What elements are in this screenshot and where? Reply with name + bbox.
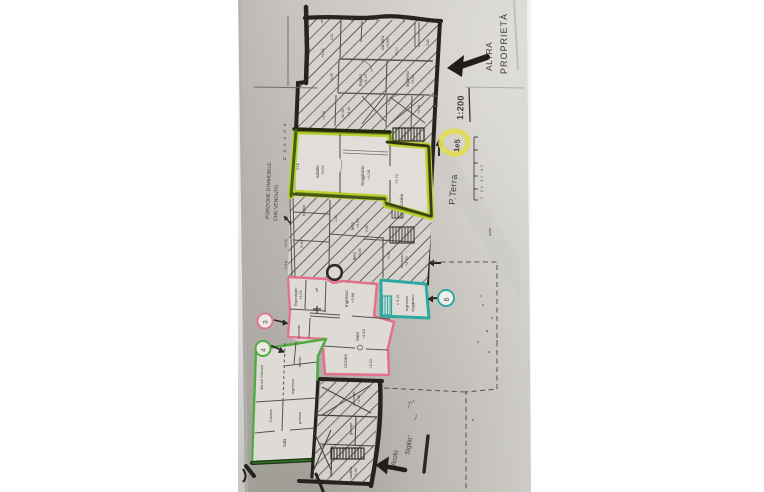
svg-text:+3.22: +3.22 [368,358,373,369]
svg-text:+3.10: +3.10 [395,47,399,56]
svg-text:+3.81: +3.81 [411,74,415,84]
svg-text:x 3.15: x 3.15 [396,295,400,305]
svg-text:camera: camera [380,35,385,50]
svg-text:garage: garage [348,422,353,435]
svg-text:+1.18: +1.18 [284,261,288,270]
svg-text:+3.85: +3.85 [386,38,390,48]
svg-text:+3.10: +3.10 [347,107,351,116]
svg-text:soggiorno: soggiorno [410,294,415,312]
svg-text:Ripostiglio: Ripostiglio [293,287,298,306]
svg-text:+3.03: +3.03 [299,290,303,300]
svg-text:Soggiorno: Soggiorno [360,165,365,186]
svg-text:6: 6 [444,298,451,302]
svg-text:Ingresso: Ingresso [344,290,349,307]
svg-text:Cucina: Cucina [343,354,348,368]
svg-text:+3.45: +3.45 [356,218,360,228]
svg-text:+3.02: +3.02 [321,165,325,175]
svg-text:+3.04: +3.04 [321,48,325,58]
svg-text:terrazzo: terrazzo [399,253,404,268]
svg-text:letto: letto [350,221,355,230]
svg-text:1:200: 1:200 [455,95,466,120]
svg-text:0 20 40 60: 0 20 40 60 [480,163,484,199]
svg-text:salotto: salotto [315,165,320,178]
svg-text:+2.71: +2.71 [394,173,399,184]
svg-text:30.46: 30.46 [341,109,345,118]
svg-text:CHE VENDUTO: CHE VENDUTO [273,184,280,221]
svg-text:PROPRIETÀ: PROPRIETÀ [499,13,509,74]
svg-text:+2.75: +2.75 [405,256,409,266]
svg-text:Sala: Sala [355,332,360,341]
svg-text:veranda: veranda [297,324,301,339]
svg-text:uff.: uff. [315,287,319,292]
svg-text:2.81: 2.81 [330,33,334,40]
svg-text:bagno: bagno [301,204,306,216]
svg-text:+3.23: +3.23 [307,47,311,56]
svg-text:Via del Casone: Via del Casone [260,365,264,390]
svg-text:P.Terra: P.Terra [447,174,459,205]
svg-text:+3.18: +3.18 [284,239,288,248]
svg-text:+1.08: +1.08 [354,468,358,477]
svg-text:porta: porta [488,228,492,236]
svg-text:pranzo: pranzo [297,411,302,424]
svg-text:ingresso: ingresso [290,378,295,394]
svg-text:cantina: cantina [349,466,353,479]
svg-text:1.45: 1.45 [334,215,338,222]
svg-text:ingresso: ingresso [405,71,410,87]
svg-text:3.46: 3.46 [300,241,304,248]
svg-text:Sala: Sala [282,438,287,447]
svg-text:Casona: Casona [282,119,288,160]
svg-text:3.18: 3.18 [296,163,300,170]
svg-text:+3.06: +3.06 [358,248,362,258]
svg-text:Cucina: Cucina [268,409,273,422]
svg-text:+3.18: +3.18 [322,111,326,120]
svg-text:+2.20: +2.20 [387,251,391,260]
svg-text:bagno: bagno [358,74,363,86]
svg-text:3: 3 [263,320,270,324]
svg-text:+3.10: +3.10 [417,105,421,114]
svg-text:veranda: veranda [351,391,356,406]
svg-text:letto: letto [352,251,357,260]
svg-text:3.08: 3.08 [365,225,369,232]
svg-text:4: 4 [261,348,268,352]
svg-text:+3.15: +3.15 [364,74,368,84]
svg-text:+3.88: +3.88 [350,292,355,303]
svg-text:Cucina: Cucina [399,193,404,208]
svg-text:+2.08: +2.08 [357,395,361,404]
svg-text:3.85: 3.85 [426,39,430,46]
svg-text:3.95: 3.95 [330,73,334,80]
svg-text:ingresso: ingresso [404,295,409,311]
svg-text:+3.15: +3.15 [361,328,366,339]
svg-text:+3.28: +3.28 [366,169,371,180]
svg-text:1e5: 1e5 [452,139,462,152]
svg-text:tinello: tinello [297,356,302,367]
